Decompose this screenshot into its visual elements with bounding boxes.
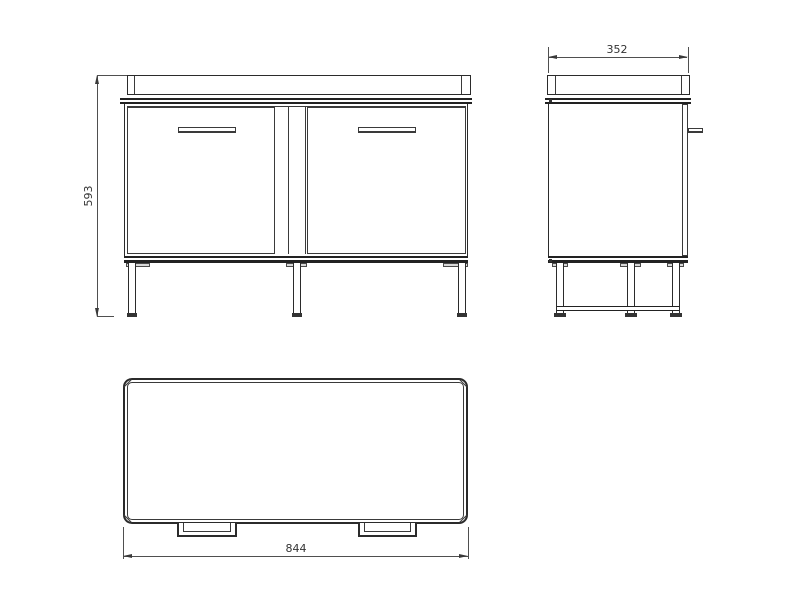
- front-dim-line: [97, 75, 98, 317]
- side-dim-line: [549, 57, 687, 58]
- side-top-rail-cap-left: [555, 76, 556, 94]
- front-center-stile: [288, 107, 306, 254]
- front-door-handle-left: [178, 127, 236, 133]
- front-bottom-rail: [124, 256, 468, 263]
- side-top-rail-cap-right: [681, 76, 682, 94]
- front-top-rail-cap-left: [134, 76, 135, 94]
- top-dim-arrow-left-icon: [123, 554, 132, 558]
- front-dim-ext-top: [97, 75, 128, 76]
- top-handle-right-inner: [364, 523, 411, 532]
- front-top-rail-cap-right: [461, 76, 462, 94]
- side-bottom-rail: [548, 256, 688, 263]
- side-foot-middle: [625, 313, 637, 317]
- side-dim-ext-left: [548, 47, 549, 73]
- top-width-dimension-label: 844: [276, 543, 316, 555]
- top-handle-left-inner: [183, 523, 231, 532]
- drawing-sheet: 593: [0, 0, 800, 600]
- side-leg-stretcher: [557, 306, 679, 311]
- front-foot-left: [127, 313, 137, 317]
- side-dim-arrow-left-icon: [548, 55, 557, 59]
- top-dim-arrow-right-icon: [459, 554, 468, 558]
- side-foot-front: [554, 313, 566, 317]
- front-door-handle-right: [358, 127, 416, 133]
- front-dim-arrow-up-icon: [95, 75, 99, 84]
- side-screw-dot-bottom: [549, 259, 552, 262]
- front-dim-ext-bottom: [97, 316, 114, 317]
- side-handle-profile: [688, 128, 703, 133]
- front-leg-center: [293, 263, 301, 313]
- front-foot-center: [292, 313, 302, 317]
- side-dim-arrow-right-icon: [679, 55, 688, 59]
- top-dim-ext-right: [468, 527, 469, 559]
- side-top-rail: [547, 75, 690, 95]
- side-panel: [548, 104, 682, 256]
- front-top-rail: [127, 75, 471, 95]
- side-door-edge: [682, 104, 688, 256]
- top-countertop-inner-line: [127, 382, 464, 520]
- top-dim-line: [124, 556, 468, 557]
- front-foot-right: [457, 313, 467, 317]
- side-depth-dimension-label: 352: [597, 44, 637, 56]
- front-leg-left: [128, 263, 136, 313]
- front-height-dimension-label: 593: [83, 176, 95, 216]
- side-foot-rear: [670, 313, 682, 317]
- side-screw-dot-top: [549, 99, 552, 102]
- front-leg-right: [458, 263, 466, 313]
- side-dim-ext-right: [688, 47, 689, 73]
